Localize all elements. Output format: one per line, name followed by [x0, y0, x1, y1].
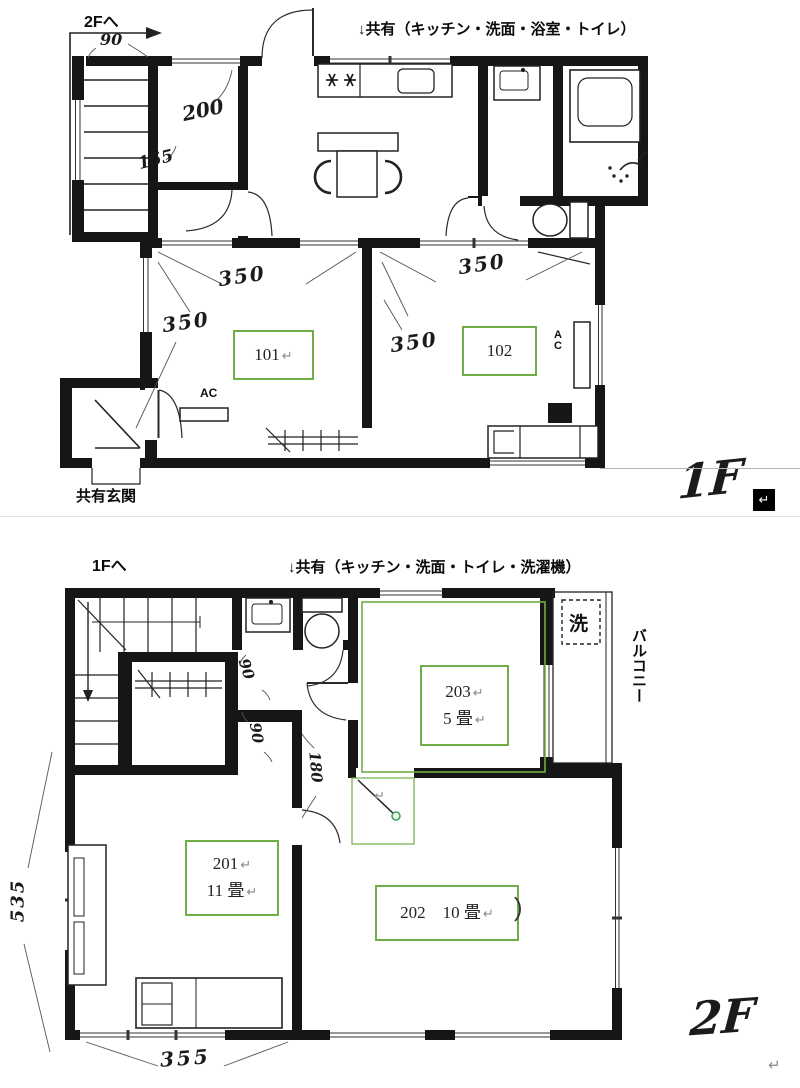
ac-unit-101 — [180, 408, 228, 421]
room-203-label-box[interactable]: 203↵ 5 畳↵ — [420, 665, 509, 746]
room-202-text: 202 10 畳 — [400, 903, 481, 922]
floor2-walls — [65, 588, 622, 1040]
line-break-mark: ↵ — [483, 906, 494, 921]
document-page: 2Fへ ↓共有（キッチン・洗面・浴室・トイレ） 90 200 155 350 3… — [0, 0, 800, 1088]
room-102-label-box[interactable]: 102 — [462, 326, 537, 376]
shared-note-1f: ↓共有（キッチン・洗面・浴室・トイレ） — [358, 18, 636, 39]
room-201-number: 201 — [213, 854, 239, 873]
hanger-rail-2f — [135, 670, 222, 698]
bathtub — [570, 70, 640, 142]
chair-icon — [315, 161, 331, 193]
dim-90-1f: 90 — [100, 30, 122, 49]
down-arrow-icon — [83, 602, 93, 702]
floor-mark-1f: 1F — [676, 448, 744, 509]
room-101-label-box[interactable]: 101↵ — [233, 330, 314, 380]
line-break-mark: ↵ — [475, 712, 486, 727]
black-cabinet — [548, 403, 572, 423]
return-mark: ↵ — [759, 492, 770, 508]
washer-label: 洗 — [569, 609, 588, 636]
hanger-rail-1f — [266, 428, 358, 452]
shelf-201 — [68, 845, 106, 985]
floor2-plan-drawing — [0, 520, 800, 1088]
entrance-label: 共有玄関 — [76, 485, 136, 506]
floor-mark-2f: 2F — [688, 988, 756, 1047]
stairs-2f — [75, 593, 200, 744]
nav-label-1f: 2Fへ — [84, 8, 119, 32]
dim-90-2f-b: 90 — [246, 721, 267, 745]
entrance-step — [92, 400, 140, 484]
toilet-1f — [533, 202, 588, 238]
line-break-mark: ↵ — [282, 348, 293, 363]
floor1-plan-drawing — [0, 0, 800, 520]
selection-handle[interactable] — [392, 812, 400, 820]
room-203-number: 203 — [445, 682, 471, 701]
washbasin-1f — [494, 66, 540, 100]
return-mark-box: ↵ — [753, 489, 775, 511]
stairs-1f — [84, 80, 148, 210]
kitchen-sink — [398, 69, 434, 93]
ac-label-101: AC — [200, 386, 217, 400]
page-divider — [0, 516, 800, 517]
room-203-size: 5 畳 — [443, 709, 473, 728]
chair-icon — [385, 161, 401, 193]
dining-table — [315, 133, 401, 197]
floor2-doors — [302, 650, 348, 843]
shared-note-2f: ↓共有（キッチン・洗面・トイレ・洗濯機） — [288, 556, 581, 577]
closet-counter-102 — [488, 426, 598, 458]
bed — [136, 978, 282, 1028]
room-202-label-box[interactable]: 202 10 畳↵ — [375, 885, 519, 941]
nav-label-2f: 1Fへ — [92, 552, 127, 576]
toilet-2f — [302, 598, 342, 648]
ac-label-102: A C — [554, 330, 562, 352]
canvas-edge-line — [600, 468, 800, 469]
line-break-mark: ↵ — [246, 884, 257, 899]
ac-unit-102 — [574, 322, 590, 388]
room-201-size: 11 畳 — [207, 881, 245, 900]
room-102-number: 102 — [487, 341, 513, 360]
dim-180: 180 — [305, 751, 326, 784]
balcony-label: バルコニー — [628, 628, 649, 773]
stray-line-break-mark: ↵ — [768, 1056, 781, 1074]
washbasin-2f — [246, 598, 290, 632]
room-101-number: 101 — [254, 345, 280, 364]
line-break-mark: ↵ — [240, 857, 251, 872]
dim-355: 355 — [159, 1044, 211, 1071]
line-break-mark: ↵ — [473, 685, 484, 700]
faint-line-break-mark: ↵ — [374, 788, 385, 804]
paren-mark: ） — [513, 890, 539, 927]
room-201-label-box[interactable]: 201↵ 11 畳↵ — [185, 840, 279, 916]
dim-535: 535 — [7, 879, 28, 923]
